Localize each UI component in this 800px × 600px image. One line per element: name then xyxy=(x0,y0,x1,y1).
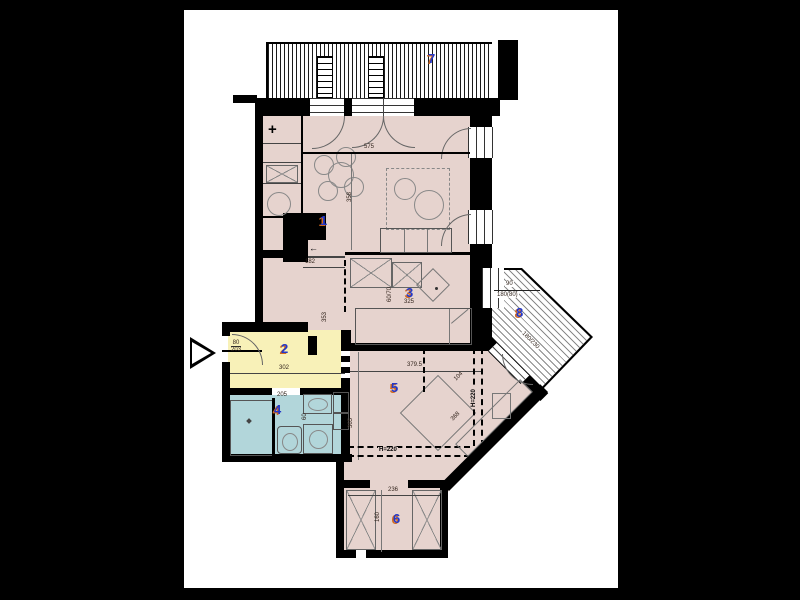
electrical-symbol: + xyxy=(268,122,277,137)
wall xyxy=(222,394,230,462)
wall xyxy=(255,250,308,258)
balcony-step-icon xyxy=(368,56,384,98)
shelf xyxy=(492,393,511,419)
chair xyxy=(336,147,356,167)
dim-entry-door-width: 80 xyxy=(231,340,241,347)
wall xyxy=(308,336,317,355)
wall xyxy=(336,550,448,558)
door-mullion xyxy=(383,98,384,116)
dimension-line xyxy=(230,373,345,374)
exit-opening xyxy=(356,550,366,558)
stove-icon xyxy=(266,165,298,183)
dim-bedroom-depth: 365 xyxy=(348,418,354,428)
blanket-fold xyxy=(451,309,468,324)
room-3-label: 3 xyxy=(406,286,413,299)
exit-arrow: ← xyxy=(366,548,375,557)
dim-study-door: 60/70 xyxy=(387,287,393,302)
chair xyxy=(318,181,338,201)
washbasin xyxy=(303,394,332,414)
door-swing-arrow: ← xyxy=(309,244,318,253)
floor-plan-canvas: 7 xyxy=(0,0,800,600)
dim-dressing-depth: 160 xyxy=(375,512,381,522)
chair-dot xyxy=(435,287,438,290)
dim-bath-width: 205 xyxy=(277,392,287,398)
wall xyxy=(498,40,518,100)
dim-bath-fixture: 60 xyxy=(302,413,308,420)
dimension-line xyxy=(351,154,352,250)
wall xyxy=(222,322,230,336)
dimension-line xyxy=(350,371,482,372)
dim-terrace-window-top: 90 xyxy=(505,281,514,287)
room-6-label: 6 xyxy=(393,512,400,525)
dashed-line xyxy=(423,348,425,392)
wall xyxy=(302,152,470,154)
dim-entry-door-height: 203 xyxy=(231,347,241,353)
dimension-line xyxy=(494,290,540,291)
room-2-label: 2 xyxy=(281,342,288,355)
pouf xyxy=(414,190,444,220)
balcony-step-icon xyxy=(317,56,333,98)
room-1-label: 1 xyxy=(320,214,327,227)
chair xyxy=(314,155,334,175)
kitchen-divider xyxy=(263,143,301,144)
kitchen-divider xyxy=(263,162,301,163)
sink-icon xyxy=(267,192,291,216)
shower-drain xyxy=(246,418,252,424)
room-8-label: 8 xyxy=(516,306,523,319)
bed xyxy=(355,308,472,345)
entry-door-dim: 80 203 xyxy=(231,340,241,353)
wall xyxy=(222,322,308,332)
room-7-label: 7 xyxy=(428,52,435,65)
window-opening xyxy=(468,127,498,158)
washer-drum xyxy=(309,430,328,449)
toilet xyxy=(277,426,302,454)
dim-height-note: H=220 xyxy=(378,447,398,453)
entrance-marker-inner xyxy=(192,342,211,364)
dim-bedroom-width: 379.5 xyxy=(407,362,422,368)
bath-cabinet xyxy=(333,392,349,414)
wall xyxy=(255,98,263,330)
dimension-line xyxy=(358,352,359,460)
wardrobe xyxy=(346,490,376,550)
dimension-line xyxy=(381,490,382,552)
wall xyxy=(233,95,257,103)
window-opening xyxy=(310,98,344,116)
shower xyxy=(230,400,274,456)
sofa-divider xyxy=(404,229,405,252)
dim-height-note: H=220 xyxy=(471,388,477,408)
washing-machine xyxy=(303,424,333,454)
toilet-bowl xyxy=(282,433,298,451)
wall xyxy=(308,256,345,258)
height-dashed-line xyxy=(348,455,470,457)
height-dashed-line xyxy=(348,446,470,448)
basin-bowl xyxy=(308,398,328,411)
dim-corridor-width: 182 xyxy=(305,259,315,265)
wardrobe xyxy=(412,490,442,550)
pouf xyxy=(394,178,416,200)
window-opening xyxy=(468,210,498,244)
dim-dressing-width: 236 xyxy=(388,487,398,493)
dim-hall-width: 302 xyxy=(279,365,289,371)
dim-room1-depth: 358 xyxy=(347,192,353,202)
kitchen-divider xyxy=(263,183,301,184)
room-5-label: 5 xyxy=(391,381,398,394)
sofa-divider xyxy=(427,229,428,252)
kitchen-divider xyxy=(263,216,301,218)
bed-line xyxy=(449,309,450,344)
dimension-line xyxy=(348,495,440,496)
dim-corridor-depth: 353 xyxy=(322,312,328,322)
room-4-label: 4 xyxy=(274,403,281,416)
bath-cabinet xyxy=(333,412,349,430)
opening-dashed-line xyxy=(344,260,348,312)
terrace-door-opening xyxy=(482,268,504,308)
wall xyxy=(336,456,344,558)
wardrobe xyxy=(350,258,392,288)
dim-room1-width: 575 xyxy=(364,144,374,150)
dim-study-width: 325 xyxy=(404,299,414,305)
dimension-line xyxy=(303,267,345,268)
dim-terrace-window-bottom: 180(80) xyxy=(496,292,519,298)
